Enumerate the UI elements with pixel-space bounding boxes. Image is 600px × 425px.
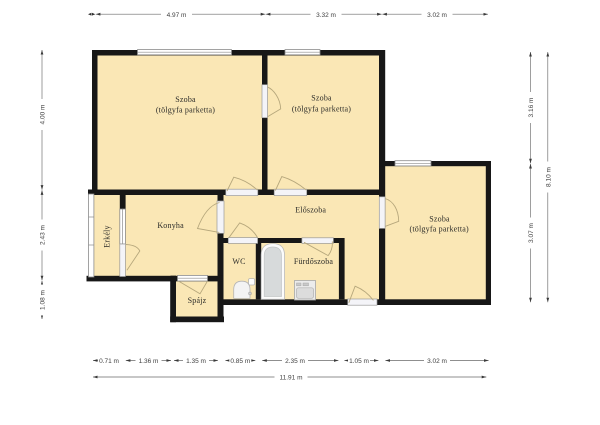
svg-text:2.43 m: 2.43 m [40, 225, 47, 245]
svg-text:3.02 m: 3.02 m [427, 12, 447, 19]
svg-text:1.05 m: 1.05 m [349, 358, 369, 365]
svg-text:4.00 m: 4.00 m [40, 105, 47, 125]
svg-text:(tölgyfa parketta): (tölgyfa parketta) [156, 106, 215, 115]
svg-text:2.35 m: 2.35 m [285, 358, 305, 365]
svg-text:0.85 m: 0.85 m [230, 358, 250, 365]
svg-text:WC: WC [232, 257, 245, 266]
svg-text:1.36 m: 1.36 m [139, 358, 159, 365]
svg-text:3.02 m: 3.02 m [427, 358, 447, 365]
svg-text:1.08 m: 1.08 m [40, 290, 47, 310]
svg-text:Szoba: Szoba [429, 214, 450, 223]
svg-text:3.32 m: 3.32 m [316, 12, 336, 19]
svg-text:0.71 m: 0.71 m [99, 358, 119, 365]
svg-text:Konyha: Konyha [157, 221, 184, 230]
svg-text:Fürdőszoba: Fürdőszoba [294, 257, 334, 266]
svg-text:Szoba: Szoba [175, 95, 196, 104]
svg-text:Spájz: Spájz [188, 296, 207, 305]
svg-text:4.97 m: 4.97 m [167, 12, 187, 19]
svg-text:Szoba: Szoba [311, 94, 332, 103]
svg-text:3.16 m: 3.16 m [528, 98, 535, 118]
svg-text:3.07 m: 3.07 m [528, 223, 535, 243]
svg-text:(tölgyfa parketta): (tölgyfa parketta) [410, 225, 469, 234]
svg-text:11.91 m: 11.91 m [279, 375, 302, 382]
svg-text:Előszoba: Előszoba [295, 205, 326, 214]
svg-text:8.10 m: 8.10 m [545, 167, 552, 187]
svg-text:(tölgyfa parketta): (tölgyfa parketta) [292, 104, 351, 113]
svg-text:1.35 m: 1.35 m [186, 358, 206, 365]
svg-text:Erkély: Erkély [103, 225, 112, 248]
